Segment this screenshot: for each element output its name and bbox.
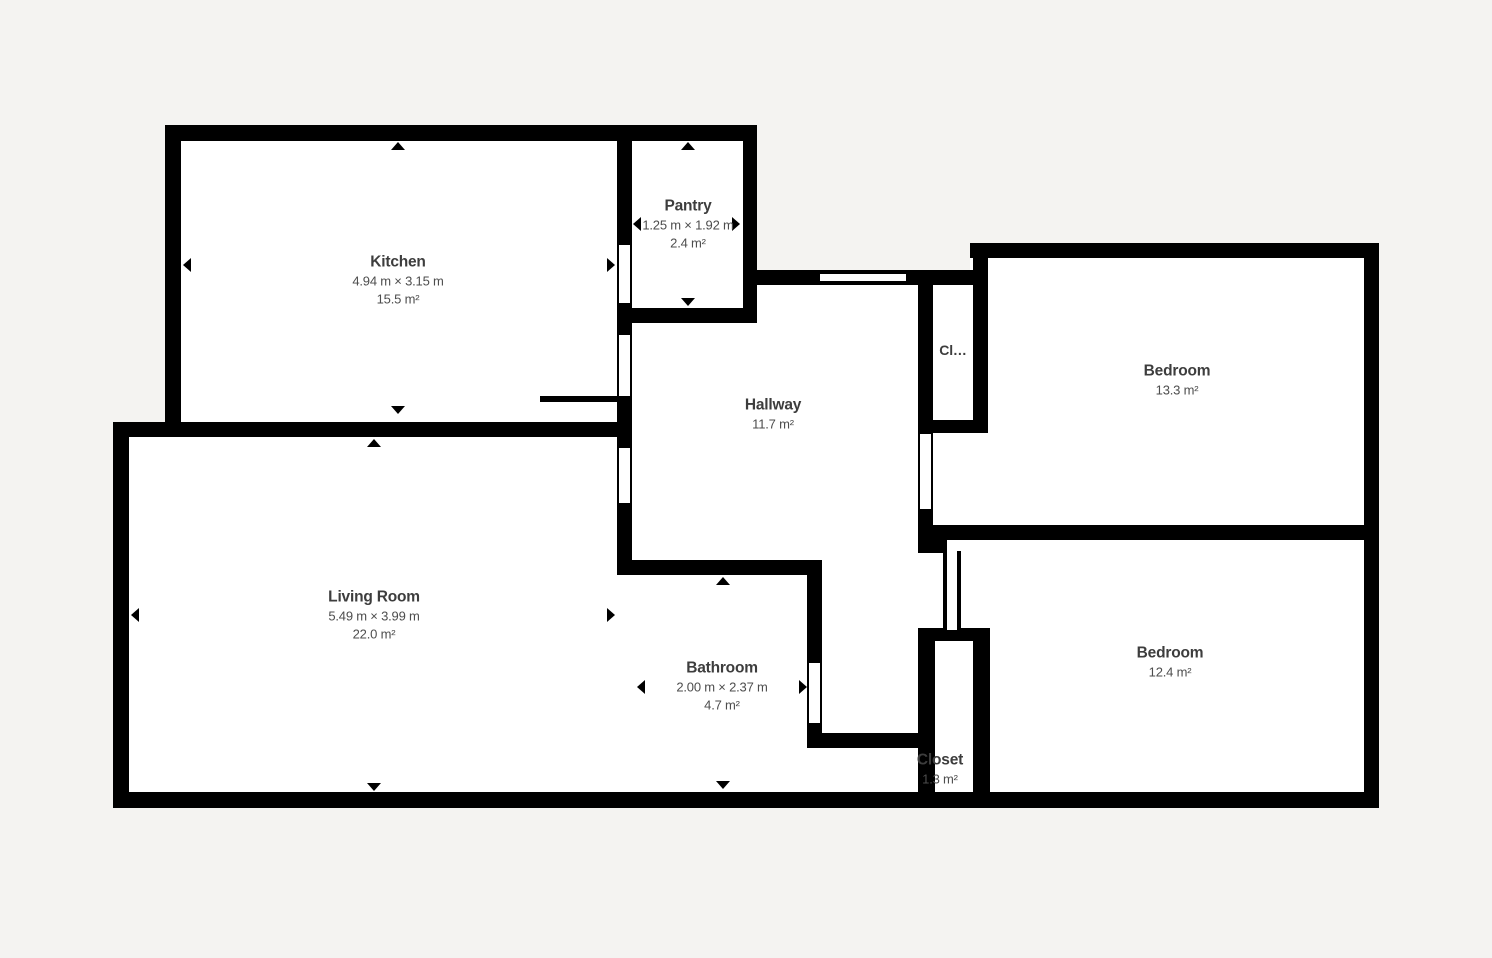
living-room-door-opening <box>619 448 630 503</box>
bathroom-name: Bathroom <box>676 659 767 679</box>
bathroom-area: 4.7 m² <box>676 696 767 714</box>
wall-pantry-right <box>743 125 757 323</box>
wall-closet-lower-right <box>973 628 990 792</box>
wall-kitchen-top <box>165 125 757 141</box>
kitchen-name: Kitchen <box>352 253 443 273</box>
hallway-top-opening <box>820 272 906 281</box>
bedroom2-name: Bedroom <box>1137 643 1204 663</box>
wall-pantry-bottom <box>619 308 757 323</box>
wall-kitchen-left <box>165 125 181 436</box>
wall-living-top <box>113 422 631 437</box>
living-room-dimensions: 5.49 m × 3.99 m <box>328 608 420 626</box>
bedroom2-label: Bedroom 12.4 m² <box>1137 643 1204 681</box>
wall-closet-upper-right <box>973 258 988 433</box>
bathroom-arrow-down <box>716 781 730 789</box>
wall-corridor-bottom <box>822 733 920 748</box>
wall-bottom-outer <box>113 792 1379 808</box>
bathroom-door-opening <box>809 663 820 723</box>
wall-bedroom-divider <box>933 525 1364 540</box>
pantry-label: Pantry 1.25 m × 1.92 m 2.4 m² <box>642 197 733 252</box>
closet-upper-label: Cl… <box>939 340 966 360</box>
bedroom1-door-opening <box>920 434 931 509</box>
living-room-label: Living Room 5.49 m × 3.99 m 22.0 m² <box>328 588 420 643</box>
kitchen-area: 15.5 m² <box>352 290 443 308</box>
hallway-name: Hallway <box>745 395 801 415</box>
bathroom-arrow-left <box>637 680 645 694</box>
living-room-area: 22.0 m² <box>328 625 420 643</box>
wall-bedroom1-top <box>970 243 1379 258</box>
bedroom1-label: Bedroom 13.3 m² <box>1144 361 1211 399</box>
bedroom1-area: 13.3 m² <box>1144 381 1211 399</box>
pantry-name: Pantry <box>642 197 733 217</box>
closet-upper-name: Cl… <box>939 340 966 360</box>
wall-closet-upper-bottom <box>918 420 988 433</box>
kitchen-arrow-down <box>391 406 405 414</box>
closet-lower-label: Closet 1.3 m² <box>917 750 963 788</box>
pantry-door-opening <box>619 245 630 303</box>
living-arrow-left <box>131 608 139 622</box>
pantry-arrow-left <box>633 217 641 231</box>
kitchen-arrow-right <box>607 258 615 272</box>
kitchen-door-opening <box>619 335 630 396</box>
bathroom-label: Bathroom 2.00 m × 2.37 m 4.7 m² <box>676 659 767 714</box>
hallway-label: Hallway 11.7 m² <box>745 395 801 433</box>
kitchen-arrow-up <box>391 142 405 150</box>
pantry-arrow-up <box>681 142 695 150</box>
bathroom-arrow-up <box>716 577 730 585</box>
kitchen-label: Kitchen 4.94 m × 3.15 m 15.5 m² <box>352 253 443 308</box>
living-arrow-up <box>367 439 381 447</box>
wall-bathroom-top <box>617 560 822 575</box>
closet-lower-name: Closet <box>917 750 963 770</box>
kitchen-counter-line <box>540 396 619 402</box>
floor-plan: Kitchen 4.94 m × 3.15 m 15.5 m² Pantry 1… <box>0 0 1492 958</box>
hallway-area: 11.7 m² <box>745 415 801 433</box>
kitchen-dimensions: 4.94 m × 3.15 m <box>352 273 443 291</box>
hallway-bathroom-floor[interactable] <box>631 272 933 808</box>
pantry-dimensions: 1.25 m × 1.92 m <box>642 217 733 235</box>
wall-divider-junction <box>918 525 947 553</box>
pantry-area: 2.4 m² <box>642 234 733 252</box>
bathroom-dimensions: 2.00 m × 2.37 m <box>676 679 767 697</box>
pantry-arrow-down <box>681 298 695 306</box>
bedroom2-door-leaf <box>943 551 961 630</box>
living-arrow-down <box>367 783 381 791</box>
living-arrow-right <box>607 608 615 622</box>
wall-right-outer <box>1364 243 1379 808</box>
wall-hallway-right <box>918 270 933 553</box>
wall-living-left <box>113 422 129 808</box>
bathroom-arrow-right <box>799 680 807 694</box>
kitchen-arrow-left <box>183 258 191 272</box>
closet-lower-area: 1.3 m² <box>917 770 963 788</box>
living-room-name: Living Room <box>328 588 420 608</box>
bedroom2-area: 12.4 m² <box>1137 663 1204 681</box>
bedroom1-name: Bedroom <box>1144 361 1211 381</box>
